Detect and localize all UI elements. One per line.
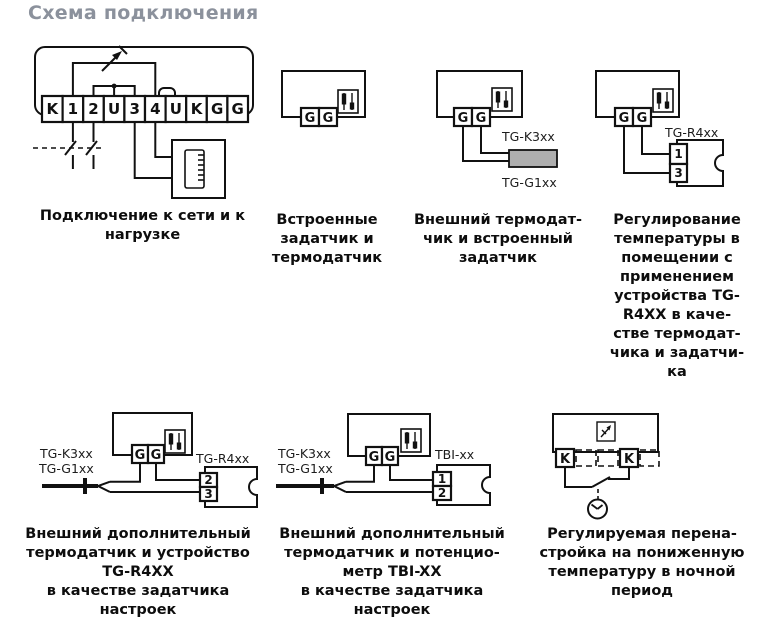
terminal-label: G <box>323 111 334 126</box>
terminal-label: U <box>108 100 120 118</box>
device-terminal: 1 <box>438 472 446 486</box>
terminal-label: G <box>232 100 244 118</box>
terminal-label: K <box>560 452 571 467</box>
terminal-label: G <box>385 450 396 465</box>
sensor-type-label: TG-G1xx <box>501 175 557 190</box>
caption-sensor-plus-tbi: Внешний дополнительный термодатчик и пот… <box>268 525 516 620</box>
terminal-label: K <box>624 452 635 467</box>
terminal-label: 2 <box>88 100 98 118</box>
terminal-label: K <box>191 100 204 118</box>
sensor-probe <box>276 478 346 494</box>
tg-r4xx-device: 2 3 <box>200 467 257 507</box>
trimmer-icon <box>401 429 421 452</box>
terminal-label: 3 <box>129 100 139 118</box>
terminal-label: G <box>211 100 223 118</box>
tbi-device: 1 2 <box>433 465 490 505</box>
device-terminal: 2 <box>438 486 446 500</box>
terminal-label: K <box>46 100 59 118</box>
device-terminal: 3 <box>204 487 212 501</box>
terminal-g-pair: G G <box>132 445 164 463</box>
tg-r4xx-device: 1 3 <box>670 140 723 186</box>
sensor-type-label: TG-K3xx <box>501 129 555 144</box>
device-label: TG-R4xx <box>664 125 718 140</box>
device-label: TBI-xx <box>434 447 474 462</box>
terminal-label: G <box>476 111 487 126</box>
caption-external-sensor: Внешний термодат- чик и встроенный задат… <box>408 211 588 268</box>
terminal-label: G <box>305 111 316 126</box>
trimmer-icon <box>338 90 358 113</box>
caption-built-in: Встроенные задатчик и термодатчик <box>262 211 392 268</box>
terminal-label: G <box>369 450 380 465</box>
terminal-label: G <box>135 448 146 463</box>
caption-mains-and-load: Подключение к сети и к нагрузке <box>25 207 260 245</box>
diagram-tg-r4xx-room: G G 1 3 TG-R4xx <box>592 64 769 200</box>
sensor-type-label: TG-K3xx <box>277 446 331 461</box>
terminal-label: G <box>619 111 630 126</box>
terminal-g-pair: G G <box>454 108 490 126</box>
diagram-mains-and-load: K 1 2 U 3 4 U K G G <box>28 42 268 208</box>
trimmer-icon <box>492 88 512 111</box>
diagram-sensor-plus-tg-r4xx: G G 2 3 TG-R4xx TG-K3xx TG-G <box>20 408 265 524</box>
adjust-icon <box>597 422 615 441</box>
terminal-label: G <box>637 111 648 126</box>
junction-dot <box>112 84 117 89</box>
diagram-built-in: G G <box>278 64 403 140</box>
caption-sensor-plus-tg-r4xx: Внешний дополнительный термодатчик и уст… <box>12 525 264 620</box>
wires <box>624 126 670 173</box>
sensor-box <box>509 150 557 167</box>
device-terminal: 2 <box>204 473 212 487</box>
caption-tg-r4xx-room: Регулирование температуры в помещении с … <box>588 211 766 382</box>
device-label: TG-R4xx <box>195 451 249 466</box>
device-terminal: 3 <box>674 166 682 180</box>
wires <box>110 463 200 492</box>
diagram-night-setback: K K <box>530 405 765 529</box>
mains-switch <box>33 122 101 169</box>
terminal-label: G <box>151 448 162 463</box>
terminal-label: U <box>170 100 182 118</box>
sensor-probe <box>42 478 110 494</box>
terminal-label: G <box>458 111 469 126</box>
diagram-sensor-plus-tbi: G G 1 2 TBI-xx TG-K3xx TG-G1 <box>275 408 520 524</box>
terminal-g-pair: G G <box>301 108 337 126</box>
timer-switch <box>565 467 629 499</box>
device-terminal: 1 <box>674 147 682 161</box>
caption-night-setback: Регулируемая перена- стройка на пониженн… <box>522 525 762 601</box>
load-box <box>135 122 225 198</box>
diagram-external-sensor: G G TG-K3xx TG-G1xx <box>432 64 582 200</box>
sensor-type-label: TG-G1xx <box>277 461 333 476</box>
sensor-type-label: TG-K3xx <box>39 446 93 461</box>
terminal-label: 1 <box>68 100 78 118</box>
terminal-g-pair: G G <box>366 447 398 465</box>
sensor-type-label: TG-G1xx <box>38 461 94 476</box>
wires <box>346 465 433 492</box>
manual-page: Схема подключения <box>0 0 769 629</box>
trimmer-icon <box>165 430 185 453</box>
terminal-strip: K 1 2 U 3 4 U K G G <box>42 96 248 122</box>
trimmer-icon <box>653 89 673 112</box>
terminal-g-pair: G G <box>615 108 651 126</box>
clock-icon <box>588 500 607 519</box>
terminal-label: 4 <box>150 100 160 118</box>
page-title: Схема подключения <box>28 2 259 24</box>
